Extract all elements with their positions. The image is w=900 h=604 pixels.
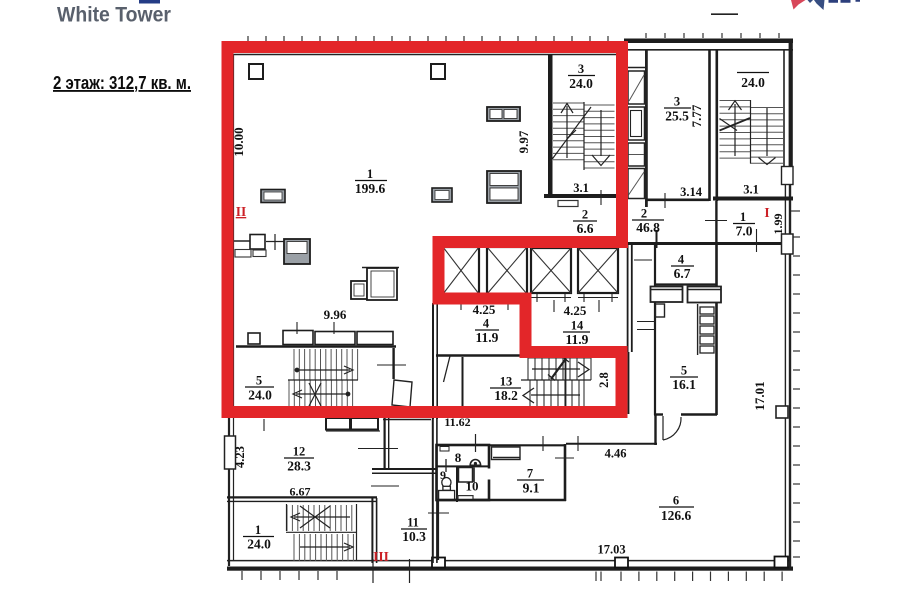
svg-text:6.67: 6.67 [290, 485, 311, 499]
svg-text:126.6: 126.6 [661, 508, 692, 523]
svg-text:II: II [236, 204, 247, 219]
svg-text:199.6: 199.6 [355, 181, 386, 196]
svg-text:9.97: 9.97 [516, 130, 531, 153]
svg-text:1: 1 [367, 167, 373, 181]
svg-text:9.1: 9.1 [523, 481, 540, 496]
svg-text:1.99: 1.99 [771, 214, 785, 235]
svg-text:6.7: 6.7 [674, 266, 691, 281]
svg-text:2: 2 [641, 207, 647, 221]
svg-text:3: 3 [674, 95, 680, 109]
svg-text:3.14: 3.14 [680, 185, 703, 199]
svg-text:6: 6 [673, 494, 679, 508]
svg-text:10.3: 10.3 [402, 529, 426, 544]
svg-text:10.00: 10.00 [231, 127, 246, 156]
svg-text:11: 11 [407, 516, 419, 530]
svg-text:5: 5 [681, 364, 687, 378]
svg-text:1: 1 [740, 210, 746, 224]
svg-text:11.9: 11.9 [476, 330, 499, 345]
svg-text:4.25: 4.25 [473, 302, 496, 317]
svg-text:4: 4 [483, 317, 490, 331]
svg-text:2: 2 [582, 208, 588, 222]
svg-text:White Tower: White Tower [57, 4, 171, 27]
svg-text:2.8: 2.8 [597, 372, 611, 388]
svg-text:8: 8 [455, 450, 462, 465]
svg-text:17.03: 17.03 [597, 543, 625, 557]
svg-text:4.25: 4.25 [564, 303, 587, 318]
svg-text:13: 13 [500, 375, 513, 389]
svg-text:I: I [764, 205, 769, 220]
svg-text:12: 12 [293, 445, 306, 459]
svg-text:3.1: 3.1 [573, 181, 589, 195]
svg-text:2 этаж: 312,7 кв. м.: 2 этаж: 312,7 кв. м. [53, 72, 191, 93]
svg-text:24.0: 24.0 [741, 75, 765, 90]
svg-text:III: III [373, 549, 389, 564]
svg-text:1: 1 [255, 523, 261, 537]
svg-text:4.46: 4.46 [605, 447, 627, 461]
svg-text:4.23: 4.23 [233, 446, 247, 468]
svg-text:6.6: 6.6 [577, 221, 594, 236]
svg-text:10: 10 [466, 479, 479, 494]
svg-text:3: 3 [578, 62, 584, 76]
svg-text:24.0: 24.0 [247, 537, 271, 552]
svg-text:46.8: 46.8 [636, 220, 660, 235]
svg-text:11.9: 11.9 [566, 332, 589, 347]
svg-text:9: 9 [440, 468, 446, 482]
svg-text:17.01: 17.01 [752, 381, 767, 410]
svg-text:7: 7 [527, 467, 533, 481]
svg-text:28.3: 28.3 [287, 459, 311, 474]
svg-text:9.96: 9.96 [324, 307, 347, 322]
svg-text:3.1: 3.1 [743, 183, 759, 197]
svg-text:5: 5 [256, 374, 262, 388]
svg-text:18.2: 18.2 [494, 388, 518, 403]
svg-text:4: 4 [678, 253, 685, 267]
svg-text:14: 14 [571, 319, 584, 333]
svg-text:25.5: 25.5 [665, 109, 689, 124]
svg-text:24.0: 24.0 [569, 76, 593, 91]
svg-text:24.0: 24.0 [248, 388, 272, 403]
svg-text:7.77: 7.77 [689, 104, 704, 127]
svg-text:16.1: 16.1 [672, 377, 696, 392]
svg-text:7.0: 7.0 [736, 224, 753, 239]
svg-text:11.62: 11.62 [444, 415, 470, 429]
